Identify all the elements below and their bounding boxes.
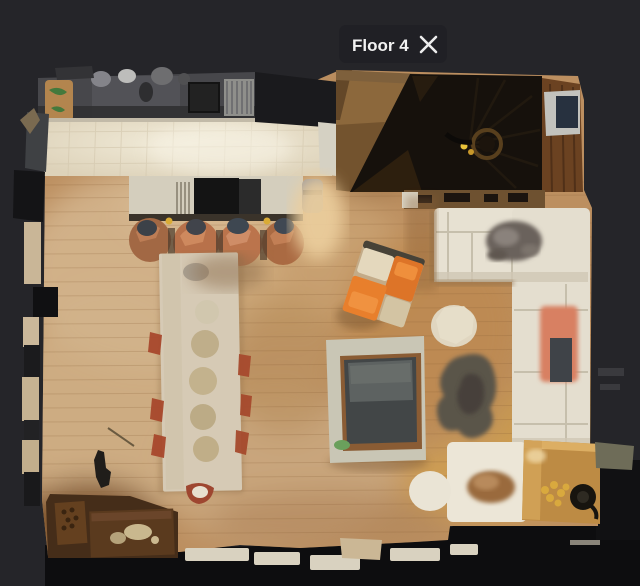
- svg-text:Floor 4: Floor 4: [352, 36, 409, 55]
